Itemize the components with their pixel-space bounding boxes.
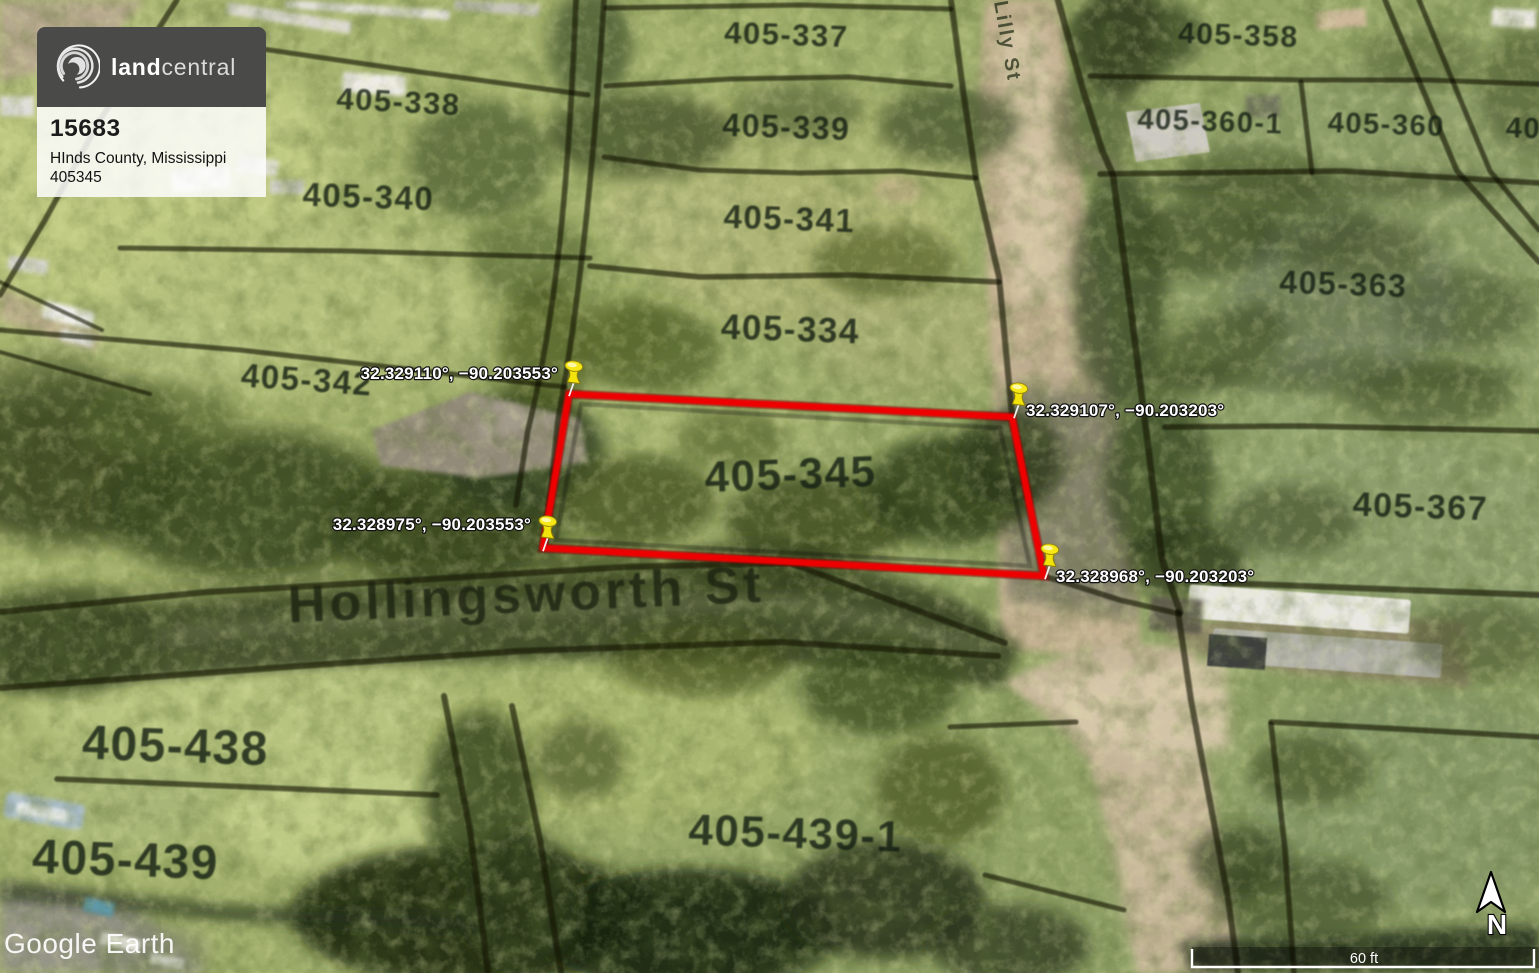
svg-text:405-334: 405-334 xyxy=(720,308,860,352)
svg-text:405: 405 xyxy=(1505,112,1539,146)
svg-text:405-339: 405-339 xyxy=(722,107,851,147)
svg-text:32.329110°, −90.203553°: 32.329110°, −90.203553° xyxy=(361,364,558,383)
svg-text:405-367: 405-367 xyxy=(1352,486,1489,529)
svg-text:405-338: 405-338 xyxy=(336,81,462,122)
svg-text:405-341: 405-341 xyxy=(723,198,856,240)
svg-text:32.328968°, −90.203203°: 32.328968°, −90.203203° xyxy=(1056,567,1254,586)
svg-text:405-337: 405-337 xyxy=(724,15,849,54)
svg-text:32.328975°, −90.203553°: 32.328975°, −90.203553° xyxy=(333,515,531,534)
svg-text:405-358: 405-358 xyxy=(1177,17,1299,54)
svg-text:405-340: 405-340 xyxy=(302,176,435,218)
svg-text:405-345: 405-345 xyxy=(704,447,878,502)
svg-text:32.329107°, −90.203203°: 32.329107°, −90.203203° xyxy=(1026,401,1224,420)
svg-text:405-438: 405-438 xyxy=(81,717,269,776)
svg-text:405-363: 405-363 xyxy=(1279,264,1408,304)
svg-text:60 ft: 60 ft xyxy=(1350,951,1378,967)
svg-text:Google Earth: Google Earth xyxy=(4,928,175,959)
svg-text:N: N xyxy=(1487,909,1507,940)
svg-text:405-360-1: 405-360-1 xyxy=(1137,103,1284,140)
svg-text:405-360: 405-360 xyxy=(1327,107,1445,143)
svg-text:405-439: 405-439 xyxy=(31,831,219,890)
svg-text:405-439-1: 405-439-1 xyxy=(688,805,904,861)
